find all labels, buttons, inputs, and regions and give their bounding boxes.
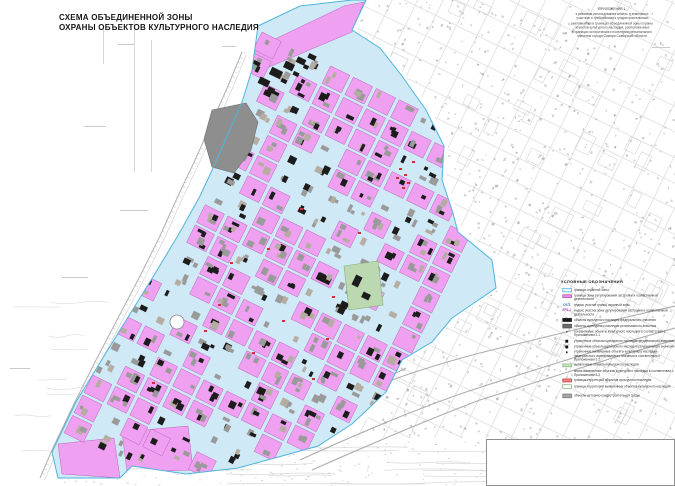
annotation-heading: ПРИЛОЖЕНИЕ 1 <box>549 7 675 11</box>
legend-item-label: выявленные объекты культурного наследия <box>573 363 675 367</box>
scheme-page: СХЕМА ОБЪЕДИНЕННОЙ ЗОНЫ ОХРАНЫ ОБЪЕКТОВ … <box>0 0 675 486</box>
stamp-box <box>486 439 675 486</box>
legend-item: границы зоны регулирования застройки и х… <box>561 294 675 301</box>
identified-heritage-swatch-icon <box>561 363 573 367</box>
legend-item: границы территорий выявленных объектов к… <box>561 384 675 388</box>
legend-item: вновь выявленные объекты культурного нас… <box>561 369 675 376</box>
legend-item: границы территорий объектов культурного … <box>561 378 675 382</box>
legend-item-label: утраченные выявленные объекты культурног… <box>573 350 675 361</box>
annotation-text: к режимам использования земель и земельн… <box>549 12 675 39</box>
map-label-dash <box>222 46 236 47</box>
lost-regional-swatch-icon <box>561 345 573 349</box>
legend-item: объекты историко-градостроительной среды <box>561 394 675 398</box>
page-title-line2: ОХРАНЫ ОБЪЕКТОВ КУЛЬТУРНОГО НАСЛЕДИЯ <box>59 23 259 33</box>
map-label-dash <box>118 44 134 45</box>
circular-plaza <box>170 315 184 329</box>
newly-identified-swatch-icon <box>561 369 573 373</box>
legend: УСЛОВНЫЕ ОБОЗНАЧЕНИЯ граница охранной зо… <box>561 280 675 446</box>
lost-federal-swatch-icon <box>561 339 573 343</box>
oz-index-swatch-icon: ОЗ-1 <box>561 303 573 307</box>
heritage-regional-swatch-icon <box>561 324 573 328</box>
legend-item: объекты культурного наследия регионально… <box>561 324 675 328</box>
page-title-line1: СХЕМА ОБЪЕДИНЕННОЙ ЗОНЫ <box>59 13 259 23</box>
legend-item: выявленные объекты культурного наследия <box>561 363 675 367</box>
map-label-dash <box>62 277 88 278</box>
legend-item-label: объекты историко-градостроительной среды <box>573 394 675 398</box>
heritage-federal-swatch-icon <box>561 318 573 322</box>
legend-item-label: границы территорий выявленных объектов к… <box>573 384 675 388</box>
green-square <box>344 261 383 310</box>
legend-item-label: границы территорий объектов культурного … <box>573 378 675 382</box>
heritage-kept-swatch-icon <box>561 330 573 334</box>
legend-item: объекты культурного наследия федеральног… <box>561 318 675 322</box>
legend-item-label: утраченные объекты культурного наследия … <box>573 339 675 343</box>
frame-line <box>151 40 152 172</box>
identified-territory-swatch-icon <box>561 385 573 389</box>
legend-item-label: индекс участка границ охранной зоны <box>573 303 675 307</box>
frame-line <box>103 28 104 64</box>
page-title: СХЕМА ОБЪЕДИНЕННОЙ ЗОНЫ ОХРАНЫ ОБЪЕКТОВ … <box>59 13 259 33</box>
legend-item-label: утраченные объекты культурного наследия … <box>573 345 675 349</box>
map-label-dash <box>84 126 106 127</box>
legend-title: УСЛОВНЫЕ ОБОЗНАЧЕНИЯ <box>561 280 675 284</box>
legend-item-label: индекс участка зоны регулирования застро… <box>573 309 675 316</box>
legend-item-label: граница охранной зоны <box>573 288 675 292</box>
heritage-territory-swatch-icon <box>561 379 573 383</box>
legend-item-label: объекты культурного наследия регионально… <box>573 324 675 328</box>
legend-item: граница охранной зоны <box>561 288 675 292</box>
map-label-dash <box>10 368 30 369</box>
legend-item-label: сохраняемые объекты культурного наследия… <box>573 330 675 337</box>
zrz-index-swatch-icon: ЗРЗ-1 <box>561 309 573 313</box>
lost-identified-swatch-icon <box>561 350 573 354</box>
legend-item: утраченные объекты культурного наследия … <box>561 345 675 349</box>
historic-environment-swatch-icon <box>561 394 573 398</box>
legend-item-label: вновь выявленные объекты культурного нас… <box>573 369 675 376</box>
legend-item-label: объекты культурного наследия федеральног… <box>573 318 675 322</box>
annotation-block: ПРИЛОЖЕНИЕ 1 к режимам использования зем… <box>549 7 675 51</box>
legend-item: сохраняемые объекты культурного наследия… <box>561 330 675 337</box>
map-label-dash <box>120 210 148 211</box>
frame-line <box>134 20 135 172</box>
zone-boundary-swatch-icon <box>561 288 573 292</box>
legend-item: ОЗ-1индекс участка границ охранной зоны <box>561 303 675 307</box>
legend-item-label: границы зоны регулирования застройки и х… <box>573 294 675 301</box>
legend-item: ЗРЗ-1индекс участка зоны регулирования з… <box>561 309 675 316</box>
legend-item: утраченные объекты культурного наследия … <box>561 339 675 343</box>
regulation-zone-swatch-icon <box>561 294 573 298</box>
legend-item: утраченные выявленные объекты культурног… <box>561 350 675 361</box>
